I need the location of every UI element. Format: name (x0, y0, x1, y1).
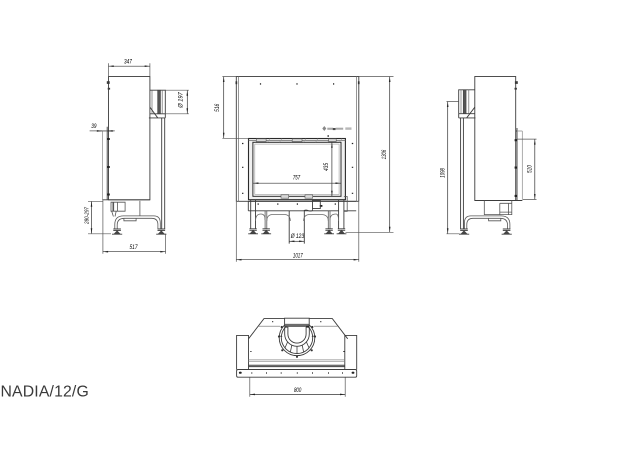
svg-text:1098: 1098 (440, 168, 447, 178)
svg-text:516: 516 (214, 103, 221, 112)
svg-text:1017: 1017 (293, 253, 303, 260)
svg-text:347: 347 (124, 58, 132, 65)
svg-text:39: 39 (91, 123, 97, 130)
svg-text:517: 517 (130, 244, 138, 251)
svg-text:1306: 1306 (381, 149, 388, 159)
svg-text:435: 435 (323, 163, 330, 171)
svg-text:Ø 197: Ø 197 (178, 92, 185, 109)
svg-text:Ø 123: Ø 123 (290, 233, 305, 240)
svg-text:510: 510 (527, 165, 534, 173)
svg-text:280-297: 280-297 (84, 206, 90, 225)
svg-text:NADIA/12/G: NADIA/12/G (1, 383, 89, 400)
svg-text:757: 757 (293, 175, 300, 182)
svg-text:800: 800 (294, 387, 302, 394)
